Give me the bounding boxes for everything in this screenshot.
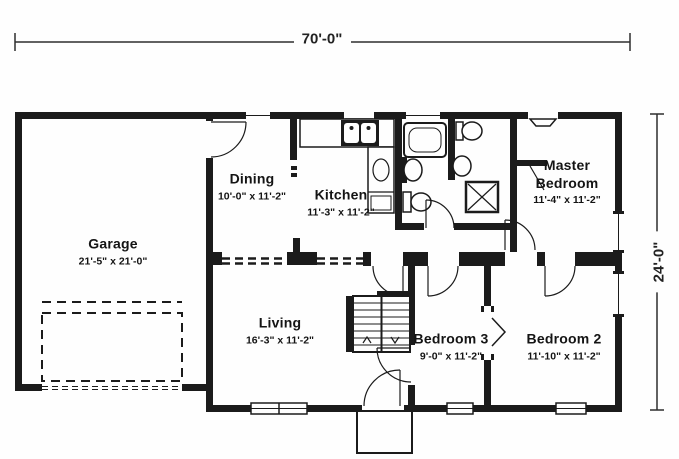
room-name: Dining <box>218 171 286 189</box>
window-icon-master-right <box>613 211 624 253</box>
room-size: 11'-4" x 11'-2" <box>526 194 608 207</box>
room-size: 9'-0" x 11'-2" <box>414 350 489 363</box>
door-swing-icon-bedroom3 <box>428 266 458 296</box>
porch-icon <box>357 411 412 453</box>
window-icon-dining <box>246 112 270 119</box>
shower-icon <box>466 182 498 212</box>
dimension-label-height: 24'-0" <box>651 232 668 293</box>
closet-chevron-icon <box>492 318 505 346</box>
toilet-icon-bath2 <box>456 122 482 140</box>
window-icon-master-top <box>528 112 558 126</box>
room-name: Bedroom 3 <box>414 331 489 349</box>
sink-icon-bath1 <box>404 159 422 181</box>
room-label-dining: Dining 10'-0" x 11'-2" <box>218 171 286 204</box>
room-name: Living <box>246 315 314 333</box>
room-size: 10'-0" x 11'-2" <box>218 190 286 203</box>
door-swing-icon-garage-dining <box>211 122 246 157</box>
room-name: Bedroom 2 <box>527 331 602 349</box>
window-icon-bedroom2 <box>556 403 586 414</box>
room-name: Master Bedroom <box>526 157 608 192</box>
room-label-bedroom2: Bedroom 2 11'-10" x 11'-2" <box>527 331 602 364</box>
window-icon-living <box>251 403 307 414</box>
room-name: Kitchen <box>307 187 375 205</box>
dimension-label-width: 70'-0" <box>295 31 350 48</box>
door-swing-icon-bedroom2 <box>545 266 575 296</box>
bathtub-icon <box>404 123 446 157</box>
window-icon-bedroom3 <box>447 403 473 414</box>
room-label-kitchen: Kitchen 11'-3" x 11'-2" <box>307 187 375 220</box>
garage-door-icon <box>42 302 182 390</box>
room-size: 11'-3" x 11'-2" <box>307 206 375 219</box>
door-swing-icon-front-entry <box>364 370 400 406</box>
room-size: 16'-3" x 11'-2" <box>246 334 314 347</box>
window-icon-bedroom2-right <box>613 271 624 317</box>
room-size: 21'-5" x 21'-0" <box>79 255 148 268</box>
room-size: 11'-10" x 11'-2" <box>527 350 602 363</box>
room-label-living: Living 16'-3" x 11'-2" <box>246 315 314 348</box>
room-label-garage: Garage 21'-5" x 21'-0" <box>79 236 148 269</box>
door-swing-icon-foyer-bedroom3 <box>377 348 411 382</box>
window-icon-bath <box>406 112 440 119</box>
floor-plan: 70'-0" 24'-0" Garage 21'-5" x 21'-0" Din… <box>0 0 679 459</box>
room-label-bedroom3: Bedroom 3 9'-0" x 11'-2" <box>414 331 489 364</box>
room-label-master-bedroom: Master Bedroom 11'-4" x 11'-2" <box>526 157 608 207</box>
stairs-icon <box>353 296 410 352</box>
kitchen-sink-icon <box>341 120 379 146</box>
room-name: Garage <box>79 236 148 254</box>
floor-plan-drawing <box>0 0 679 459</box>
toilet-icon-bath1 <box>403 192 431 212</box>
sink-icon-bath2 <box>453 156 471 176</box>
